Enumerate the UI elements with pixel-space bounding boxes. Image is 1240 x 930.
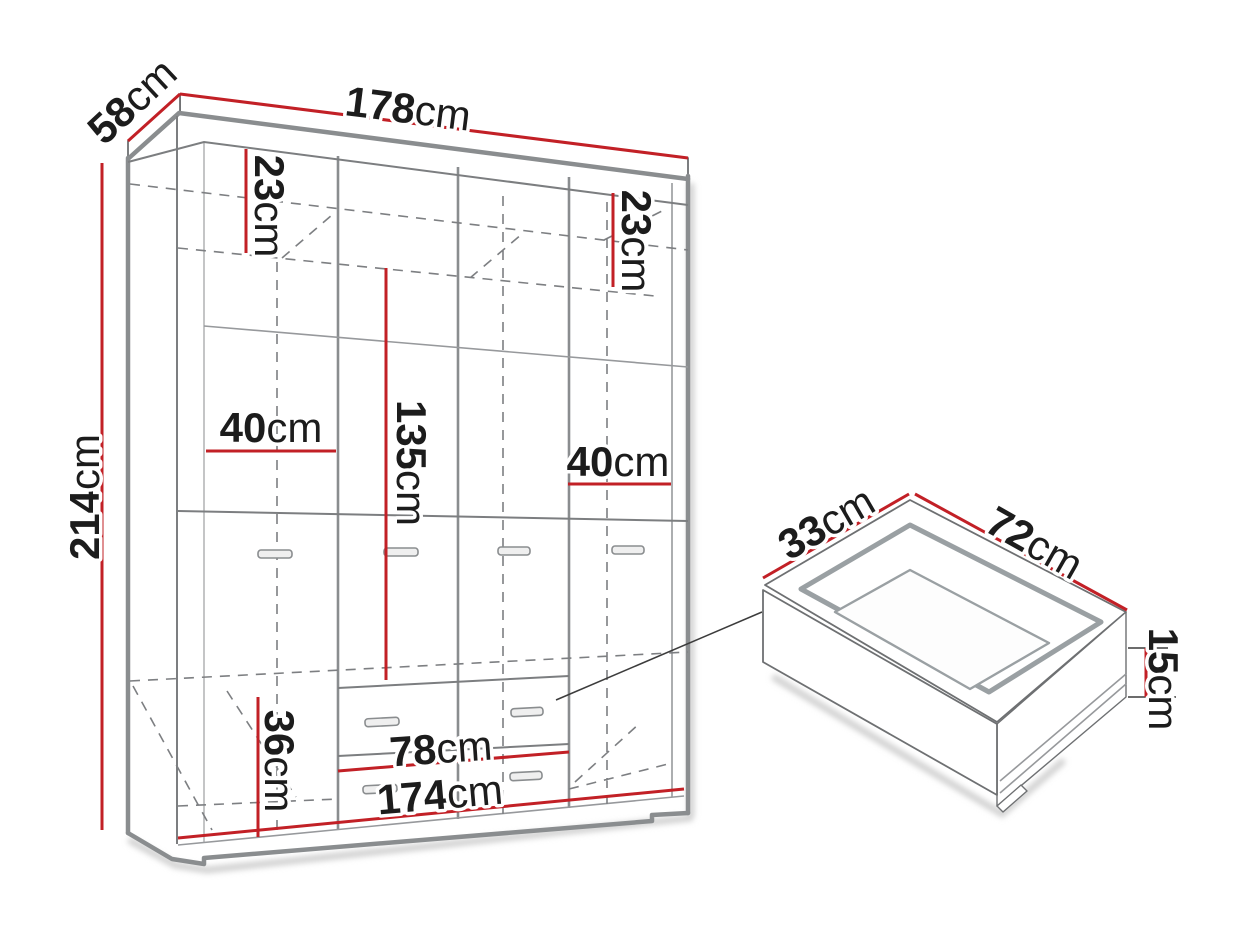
drawer-stack-top-line xyxy=(338,676,569,688)
label-hanging-135: 135cm xyxy=(388,400,435,526)
label-left-section-40: 40cm xyxy=(220,404,323,451)
label-top-shelf-right-23: 23cm xyxy=(613,190,660,293)
label-drawer-height-15: 15cm xyxy=(1140,628,1187,731)
drawer-handle xyxy=(510,771,542,781)
drawer-handle xyxy=(511,707,543,717)
door-handle xyxy=(498,547,530,555)
label-height-214: 214cm xyxy=(61,434,108,560)
label-top-shelf-left-23: 23cm xyxy=(246,155,293,258)
label-drawer-section-36: 36cm xyxy=(256,710,303,813)
drawer-handle xyxy=(365,717,399,727)
door-handle xyxy=(612,546,644,554)
diagram-page: 58cm 178cm 214cm 23cm 23cm 40cm 40cm 135… xyxy=(0,0,1240,930)
diagram-canvas: 58cm 178cm 214cm 23cm 23cm 40cm 40cm 135… xyxy=(0,0,1240,930)
door-handle xyxy=(384,548,418,556)
door-handle xyxy=(258,550,292,558)
label-right-section-40: 40cm xyxy=(567,438,670,485)
drawer-leader-line xyxy=(556,612,762,700)
